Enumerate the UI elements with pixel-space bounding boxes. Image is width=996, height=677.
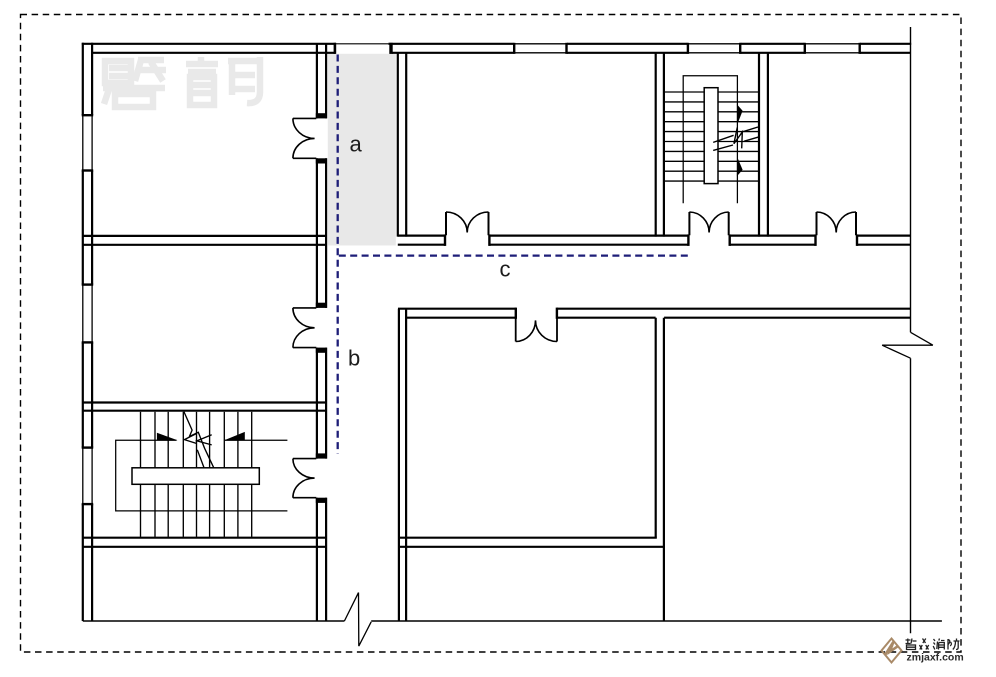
svg-text:c: c xyxy=(500,257,511,282)
svg-text:b: b xyxy=(348,345,360,370)
svg-text:zmjaxf.com: zmjaxf.com xyxy=(907,652,964,664)
svg-text:a: a xyxy=(350,132,363,157)
